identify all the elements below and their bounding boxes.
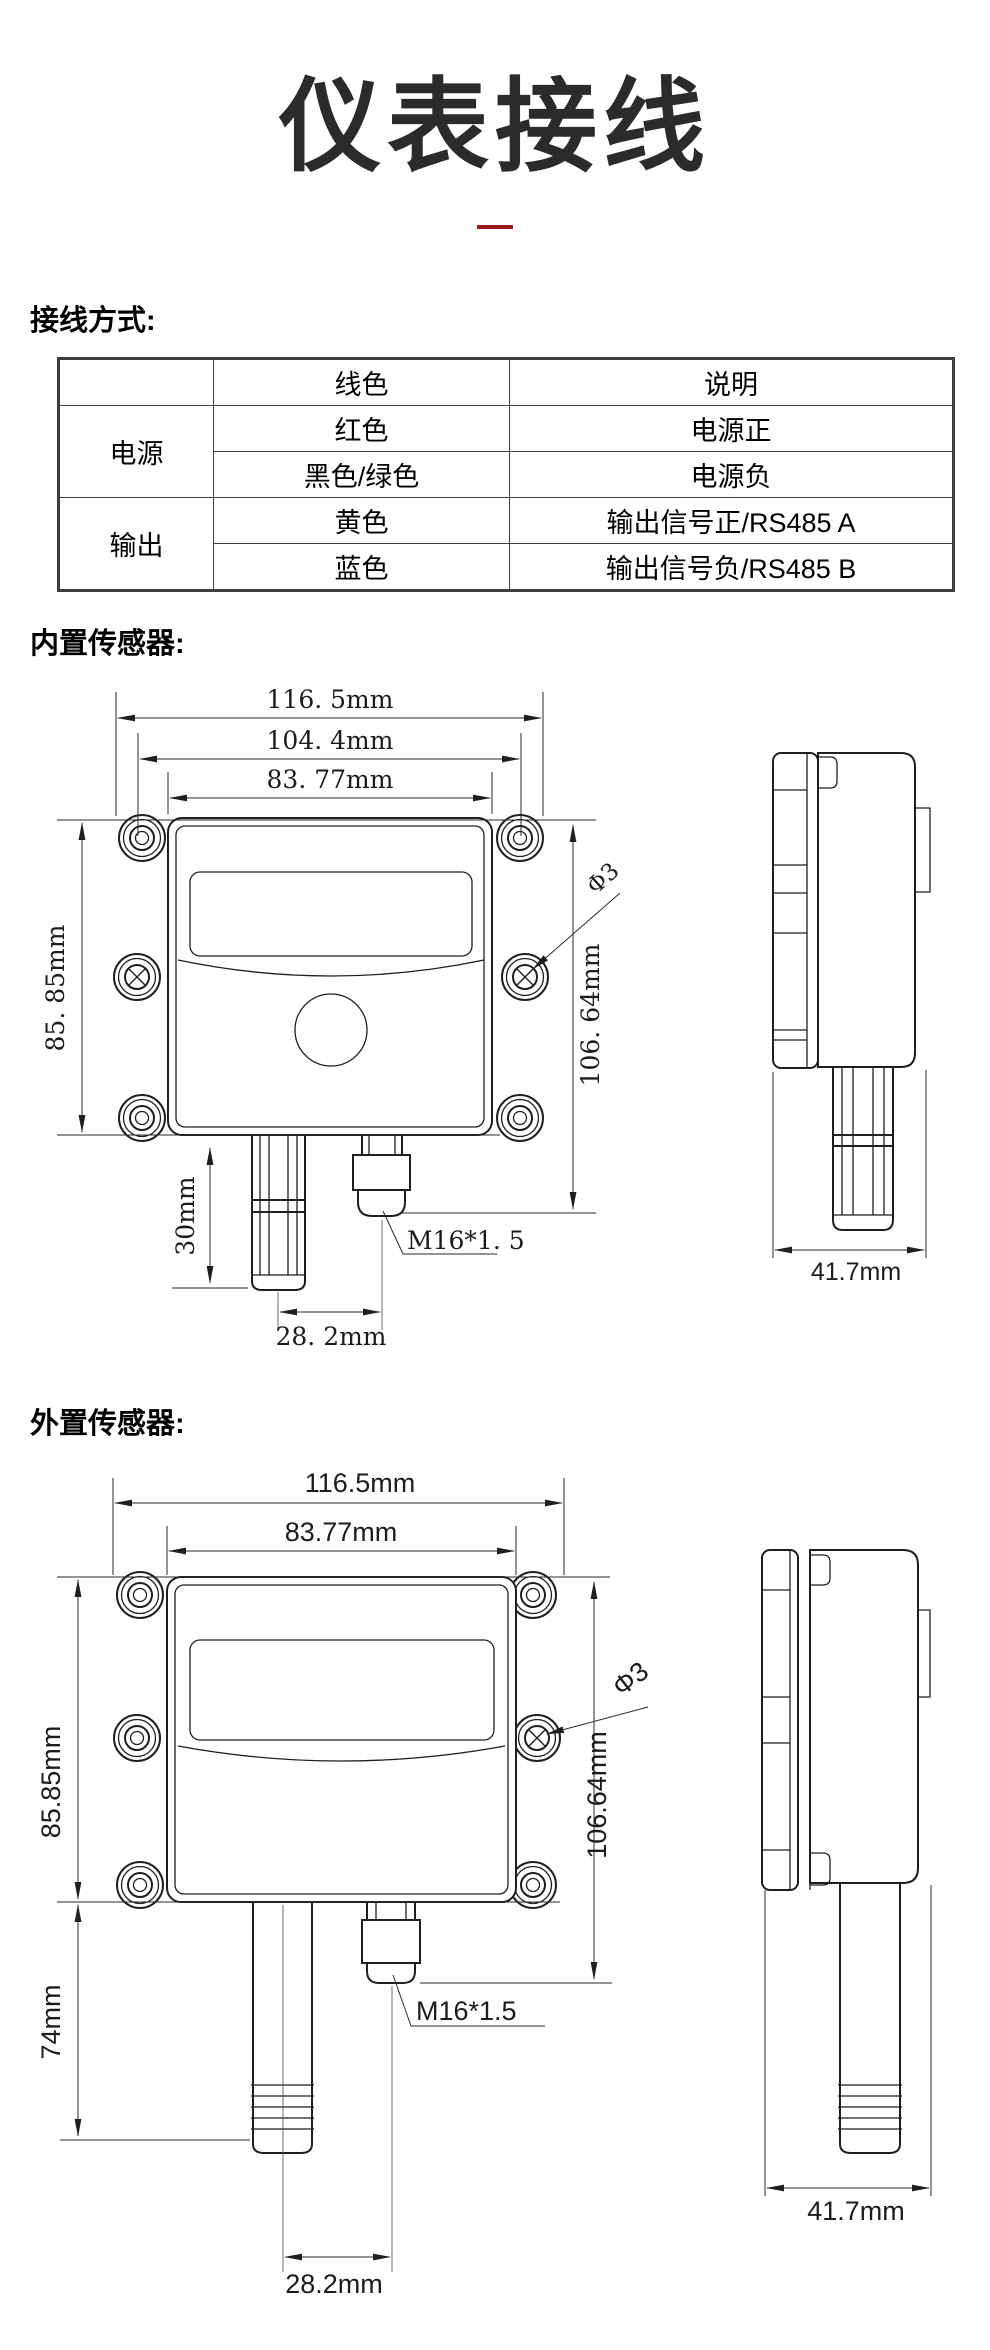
mount-hole	[497, 1095, 543, 1141]
side-mount-plate	[773, 753, 818, 1068]
dim-height-overall-label: 106. 64mm	[576, 943, 605, 1086]
dim-height-body-label: 85.85mm	[36, 1726, 66, 1839]
dim-probe-length-label: 74mm	[36, 1984, 66, 2059]
mount-hole-crossed	[502, 954, 548, 1000]
dim-probe-offset-label: 28.2mm	[285, 2269, 383, 2299]
external-front-view	[114, 1572, 560, 2153]
dim-width-overall-label: 116.5mm	[305, 1468, 416, 1498]
dim-probe-length-label: 30mm	[171, 1176, 200, 1256]
mount-hole	[114, 1715, 160, 1761]
dim-hole-diameter-label: Φ3	[582, 858, 624, 900]
side-body	[818, 753, 915, 1067]
dim-width-holes-label: 104. 4mm	[267, 726, 394, 755]
dim-width-body-label: 83. 77mm	[267, 765, 394, 794]
dim-gland-thread-label: M16*1.5	[416, 1996, 517, 2026]
dim-gland-thread-label: M16*1. 5	[407, 1226, 525, 1255]
mount-hole-crossed	[114, 954, 160, 1000]
dim-width-overall-label: 116. 5mm	[267, 685, 394, 714]
technical-drawing: 116. 5mm 104. 4mm 83. 77mm 85. 85mm 30mm…	[0, 0, 990, 2350]
cable-gland	[362, 1902, 420, 1983]
mount-hole	[119, 1095, 165, 1141]
dim-probe-offset-label: 28. 2mm	[275, 1322, 386, 1351]
dim-width-body-label: 83.77mm	[285, 1517, 398, 1547]
mount-hole	[119, 815, 165, 861]
mount-hole	[497, 815, 543, 861]
side-probe	[838, 1883, 902, 2153]
external-side-view: 41.7mm	[762, 1550, 931, 2226]
side-body	[810, 1550, 918, 1883]
side-probe	[833, 1067, 893, 1230]
dim-height-body-label: 85. 85mm	[41, 924, 70, 1051]
dim-side-depth-label: 41.7mm	[807, 2196, 905, 2226]
dim-hole-diameter-label: Φ3	[607, 1656, 654, 1702]
side-mount-plate	[762, 1550, 798, 1890]
sensor-probe	[252, 1135, 305, 1290]
mount-hole-crossed	[514, 1715, 560, 1761]
builtin-side-view: 41.7mm	[773, 753, 930, 1286]
cable-gland	[353, 1135, 410, 1216]
dim-side-depth-label: 41.7mm	[811, 1258, 901, 1286]
sensor-probe	[251, 1902, 314, 2153]
mount-hole	[117, 1572, 163, 1618]
mount-hole	[117, 1862, 163, 1908]
dim-height-overall-label: 106.64mm	[582, 1731, 612, 1859]
